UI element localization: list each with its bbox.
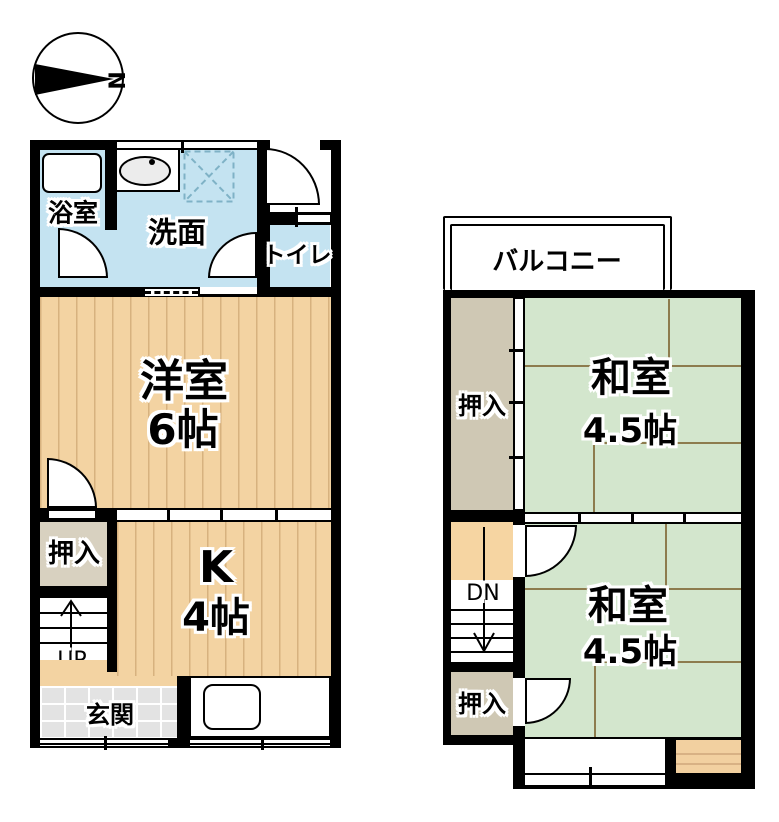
sliding-door-tick xyxy=(683,512,686,524)
washroom-label: 洗面 xyxy=(148,219,206,248)
japanese-room-lower-size-label: 4.5帖 xyxy=(583,635,677,669)
closet-1f-label: 押入 xyxy=(48,541,100,567)
japanese-room-upper-size-label: 4.5帖 xyxy=(583,414,677,448)
closet-2f-upper-label: 押入 xyxy=(458,394,506,418)
kitchen-window-tick xyxy=(261,736,264,750)
doorway-opening xyxy=(200,287,257,294)
faucet-icon xyxy=(149,159,155,165)
toilet-window-tick xyxy=(295,207,298,227)
closet-sliding-door xyxy=(513,299,525,509)
compass: N xyxy=(30,28,130,128)
bottom-window-2f xyxy=(525,737,665,787)
dashed-opening xyxy=(145,289,198,296)
japanese-room-upper-label: 和室 xyxy=(591,358,671,398)
stairs-down-label: DN xyxy=(466,583,499,605)
first-floor-plan: トイレ 浴室 洗面 洋室 6帖 xyxy=(30,140,341,748)
kitchen-sink-icon xyxy=(203,684,261,730)
closet-door-leaf xyxy=(47,509,97,520)
wall-closet-landing xyxy=(451,510,513,522)
closet-2f-lower-label: 押入 xyxy=(458,692,506,716)
toilet-label: トイレ xyxy=(263,245,332,268)
sliding-door-tick xyxy=(578,512,581,524)
sliding-door-tick xyxy=(167,508,170,522)
bath-label: 浴室 xyxy=(48,201,98,226)
second-floor-plan: バルコニー 押入 DN 押入 和室 xyxy=(443,213,755,789)
tatami-line xyxy=(594,661,596,737)
door-gap-upper xyxy=(513,525,525,577)
entrance-window-tick xyxy=(104,736,107,750)
wall-stairs-closet xyxy=(451,662,513,672)
balcony-label: バルコニー xyxy=(492,249,621,275)
washroom-window-tick xyxy=(181,140,184,153)
japanese-room-upper xyxy=(525,298,741,512)
tatami-line xyxy=(593,442,595,512)
sink-icon xyxy=(119,156,171,186)
tatami-line xyxy=(665,524,667,588)
bathtub-icon xyxy=(42,153,102,193)
japanese-room-lower-label: 和室 xyxy=(588,586,668,626)
entrance-label: 玄関 xyxy=(86,703,134,727)
door-gap-lower xyxy=(513,678,525,726)
shower-space-icon xyxy=(183,150,235,203)
floor-plan-canvas: N トイレ 浴室 洗面 xyxy=(0,0,779,822)
western-room-size-label: 6帖 xyxy=(147,409,218,451)
sliding-door-western-kitchen xyxy=(117,508,331,522)
washroom-window xyxy=(117,141,257,149)
exterior-notch xyxy=(443,745,513,789)
toilet-window xyxy=(297,214,330,223)
sliding-door-tick xyxy=(220,508,223,522)
kitchen-window xyxy=(190,738,330,748)
kitchen-label: K xyxy=(199,546,233,590)
western-room-label: 洋室 xyxy=(140,360,228,404)
sliding-door-tick xyxy=(275,508,278,522)
sliding-door-tick xyxy=(631,512,634,524)
kitchen-size-label: 4帖 xyxy=(182,598,250,638)
wood-nook xyxy=(676,740,741,773)
north-label: N xyxy=(103,71,128,89)
